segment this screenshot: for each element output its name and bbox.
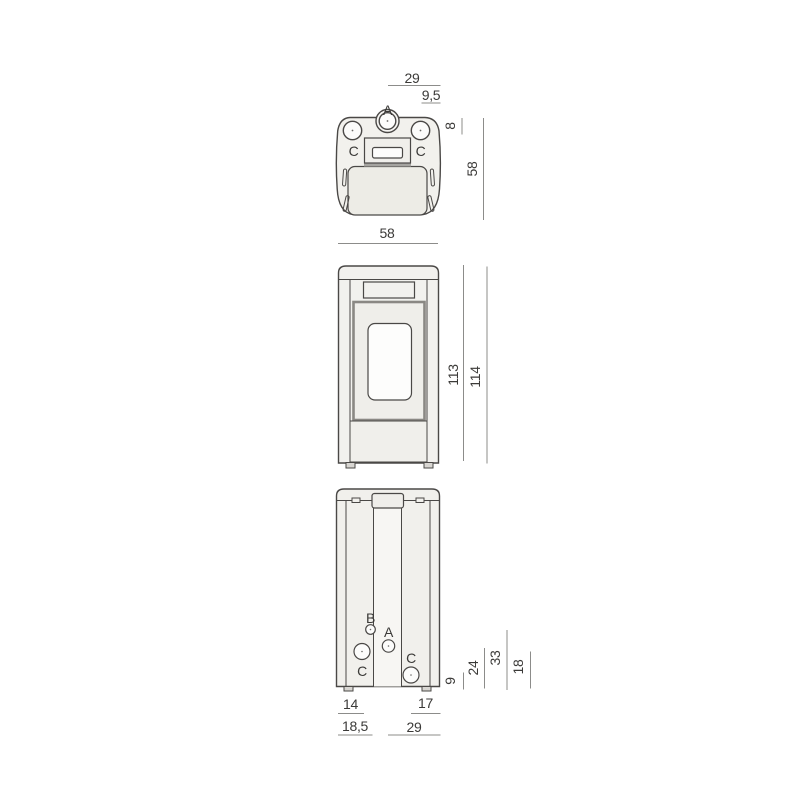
dim-rear-14: 14	[343, 697, 358, 711]
dim-top-58-bottom: 58	[380, 226, 395, 240]
label-port-c-rear-left: C	[357, 664, 367, 678]
rear-top-notch-left	[352, 498, 360, 503]
dim-rear-18-5: 18,5	[342, 719, 368, 733]
rear-port-c-left-dot	[361, 651, 363, 653]
front-foot-right	[424, 463, 433, 469]
rear-port-c-right-dot	[410, 674, 412, 676]
top-view-drawing	[336, 110, 440, 216]
front-bottom-panel	[350, 421, 427, 462]
front-door-window	[368, 324, 412, 401]
front-top-panel-rect	[364, 282, 415, 298]
rear-flue-collar-tab	[372, 494, 404, 509]
front-foot-left	[346, 463, 355, 469]
dim-rear-17: 17	[418, 696, 433, 710]
rear-view-drawing	[337, 489, 440, 691]
label-port-a-rear: A	[384, 625, 393, 639]
dim-rear-33: 33	[488, 651, 502, 666]
dim-rear-29: 29	[407, 720, 422, 734]
top-hopper-inner-rect	[373, 148, 403, 159]
rear-top-notch-right	[416, 498, 424, 503]
dim-rear-9: 9	[443, 677, 457, 685]
label-port-c-rear-right: C	[406, 651, 416, 665]
rear-foot-right	[422, 687, 431, 692]
stove-dimension-diagram: 29 9,5 8 58 58 A C C 113 114 B A C C 9 2…	[0, 0, 800, 800]
label-port-b-rear: B	[366, 611, 375, 625]
front-view-drawing	[339, 266, 439, 468]
dim-top-29: 29	[405, 71, 420, 85]
rear-port-b-dot	[370, 629, 372, 631]
diagram-linework	[0, 0, 800, 800]
dim-rear-24: 24	[466, 661, 480, 676]
port-a-center-dot	[387, 120, 389, 122]
port-c-left-dot	[352, 130, 354, 132]
rear-foot-left	[344, 687, 353, 692]
dim-top-9-5: 9,5	[422, 88, 441, 102]
label-port-c-top-left: C	[349, 144, 359, 158]
dim-top-58-side: 58	[465, 162, 479, 177]
label-port-a-top: A	[383, 103, 392, 117]
rear-center-channel-fill	[374, 501, 402, 687]
dim-rear-18: 18	[511, 660, 525, 675]
top-bottom-panel	[348, 167, 427, 216]
dim-front-113: 113	[446, 364, 460, 385]
dim-front-114: 114	[468, 366, 482, 387]
rear-port-a-dot	[388, 645, 390, 647]
dim-top-8: 8	[443, 122, 457, 130]
label-port-c-top-right: C	[416, 144, 426, 158]
port-c-right-dot	[420, 130, 422, 132]
